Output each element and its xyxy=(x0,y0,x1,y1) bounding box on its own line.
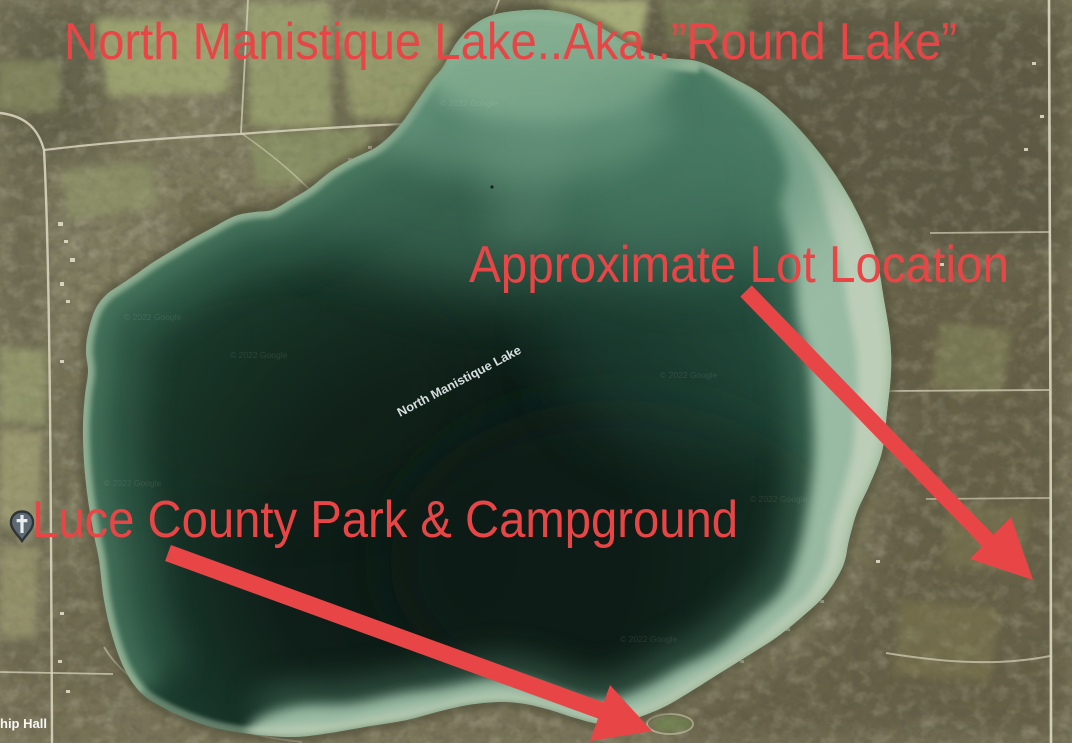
svg-text:North Manistique Lake..Aka..”R: North Manistique Lake..Aka..”Round Lake” xyxy=(64,13,957,71)
svg-text:© 2022 Google: © 2022 Google xyxy=(124,312,182,322)
svg-text:© 2022 Google: © 2022 Google xyxy=(620,634,678,644)
svg-text:Approximate Lot Location: Approximate Lot Location xyxy=(469,236,1009,294)
svg-text:© 2022 Google: © 2022 Google xyxy=(104,478,162,488)
svg-text:Luce County Park & Campground: Luce County Park & Campground xyxy=(32,491,738,549)
svg-text:© 2022 Google: © 2022 Google xyxy=(230,350,288,360)
svg-text:© 2022 Google: © 2022 Google xyxy=(660,370,718,380)
svg-text:hip Hall: hip Hall xyxy=(0,716,47,731)
svg-text:© 2022 Google: © 2022 Google xyxy=(750,494,808,504)
svg-text:© 2022 Google: © 2022 Google xyxy=(440,98,498,108)
